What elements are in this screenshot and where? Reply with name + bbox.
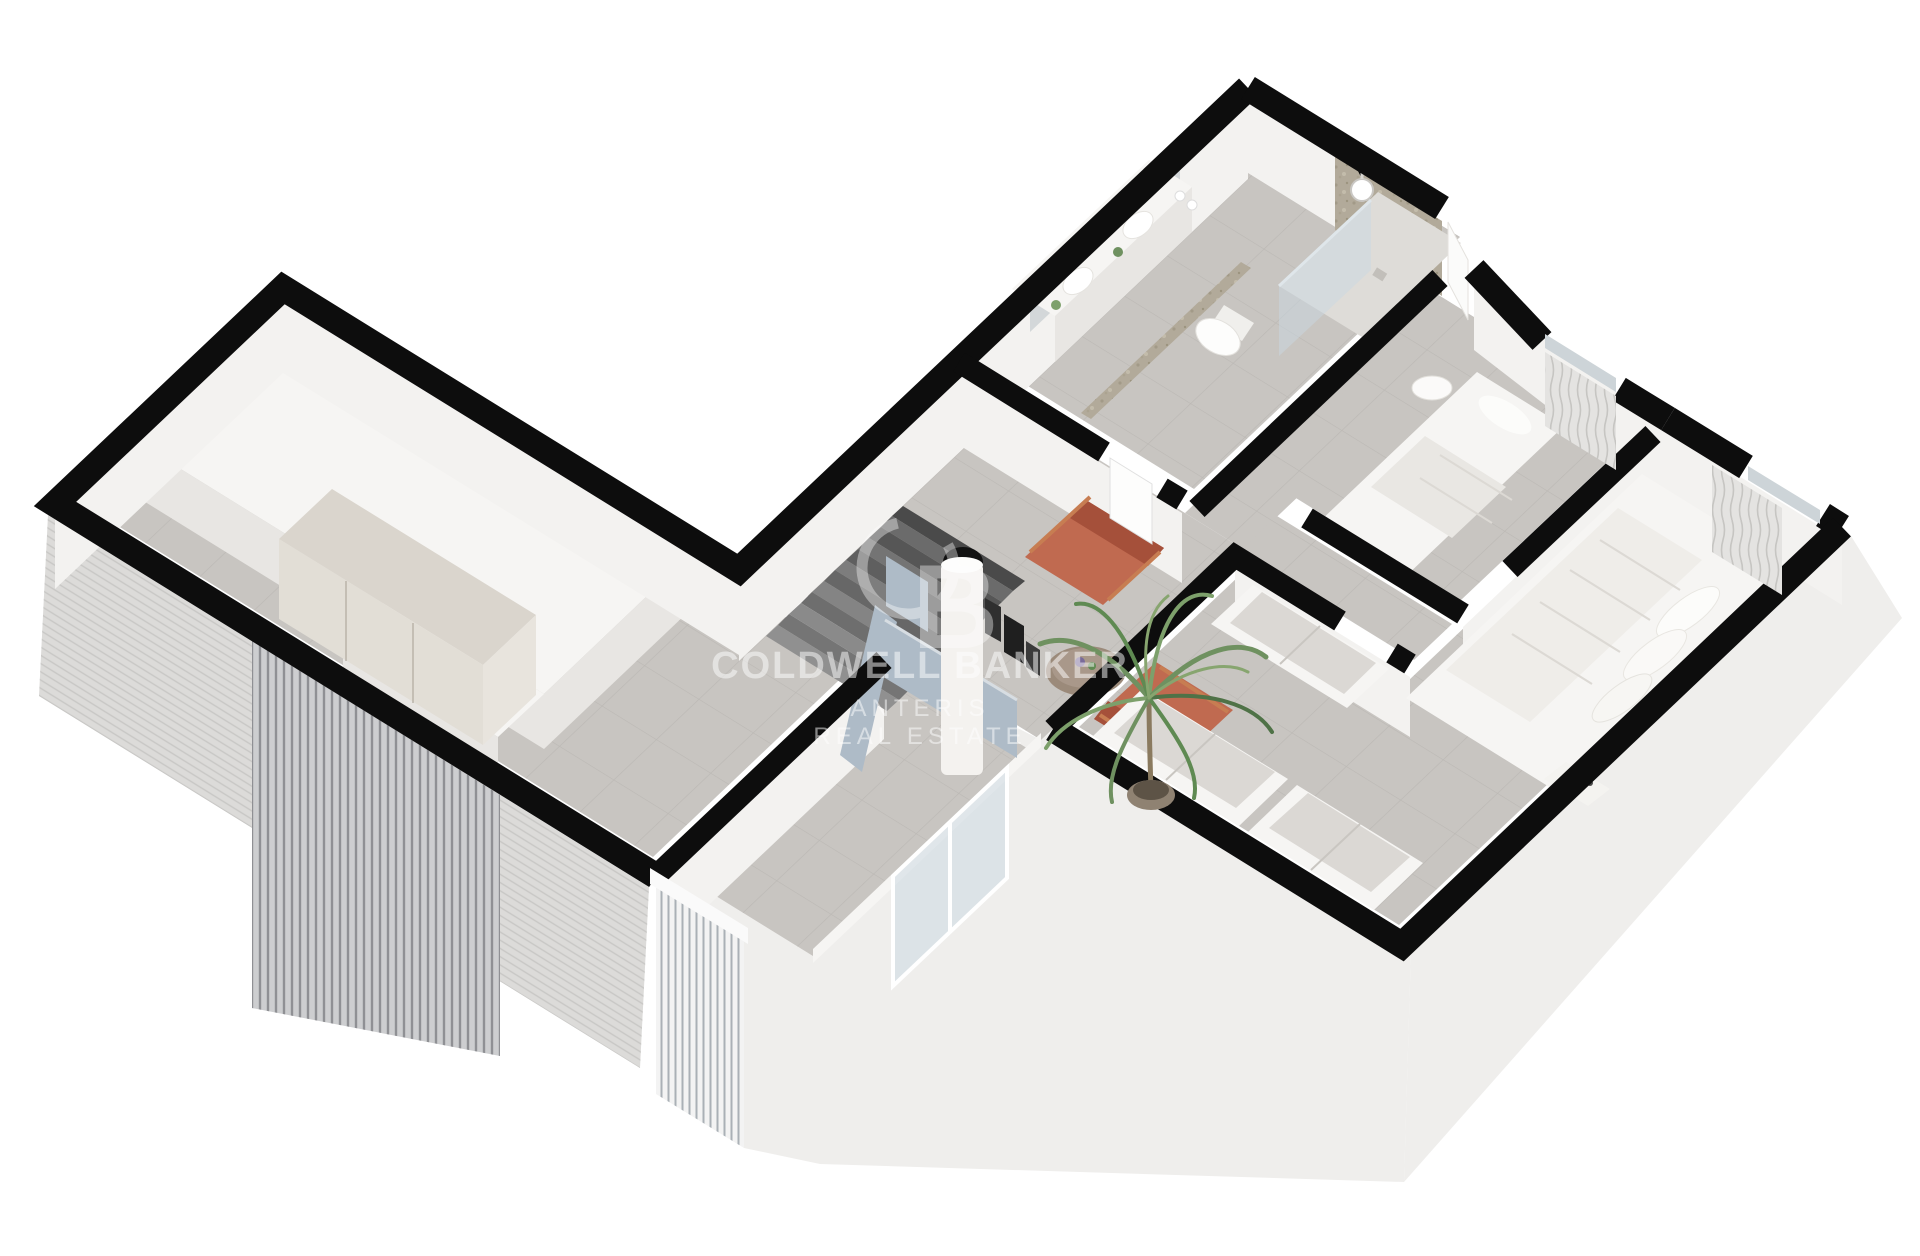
shower-head	[1351, 179, 1373, 201]
floor-plan-3d-render: B COLDWELL BANKER ANTERIS REAL ESTATE	[0, 0, 1920, 1256]
agency-name: ANTERIS	[850, 695, 989, 722]
flush-button-2	[1187, 200, 1197, 210]
vanity-plant-2	[1051, 300, 1061, 310]
flush-button	[1175, 191, 1185, 201]
agency-tagline: REAL ESTATE	[813, 723, 1026, 750]
brand-wordmark: COLDWELL BANKER	[711, 645, 1129, 687]
floor-plan-page: B COLDWELL BANKER ANTERIS REAL ESTATE	[0, 0, 1920, 1256]
bedside-stool	[1412, 376, 1452, 400]
vanity-plant	[1113, 247, 1123, 257]
palm-trunk	[1149, 698, 1151, 790]
palm-pot-soil	[1133, 780, 1169, 800]
